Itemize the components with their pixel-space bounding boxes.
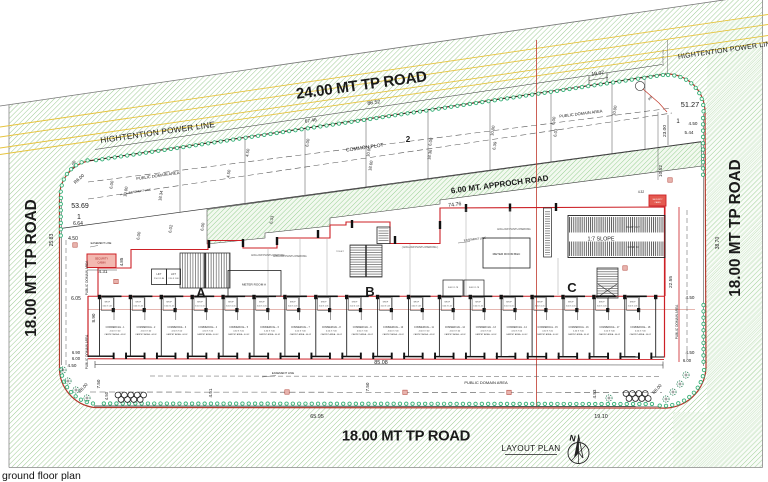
svg-text:8.90: 8.90 xyxy=(91,313,96,322)
svg-text:CARPET AREA : 44.02: CARPET AREA : 44.02 xyxy=(630,333,652,336)
svg-text:METER ROOM A: METER ROOM A xyxy=(242,283,267,287)
svg-text:4.50 X 7.00: 4.50 X 7.00 xyxy=(388,331,399,333)
svg-text:3.00 X 1.05: 3.00 X 1.05 xyxy=(628,306,638,308)
svg-text:3.00 X 1.05: 3.00 X 1.05 xyxy=(133,306,143,308)
svg-text:COMMERCIAL - 13: COMMERCIAL - 13 xyxy=(476,326,497,329)
svg-text:CARPET AREA : 44.02: CARPET AREA : 44.02 xyxy=(475,333,497,336)
svg-text:HOLLOW PLINTH PARKING: HOLLOW PLINTH PARKING xyxy=(497,227,530,231)
svg-text:4.50 X 7.00: 4.50 X 7.00 xyxy=(419,331,430,333)
svg-text:4.85: 4.85 xyxy=(119,257,124,266)
svg-text:3.68 X 1.78: 3.68 X 1.78 xyxy=(469,287,480,289)
svg-text:3.68 X 1.78: 3.68 X 1.78 xyxy=(448,287,459,289)
svg-text:COMMERCIAL - 2: COMMERCIAL - 2 xyxy=(136,326,156,329)
svg-text:7.50: 7.50 xyxy=(96,379,101,388)
svg-text:18.36: 18.36 xyxy=(426,148,433,160)
svg-text:COMMERCIAL - 7: COMMERCIAL - 7 xyxy=(291,326,311,329)
svg-text:R6.00: R6.00 xyxy=(77,382,89,394)
svg-text:7.50: 7.50 xyxy=(365,382,370,391)
svg-text:4.53: 4.53 xyxy=(592,389,597,398)
svg-text:1: 1 xyxy=(676,119,680,125)
svg-text:3.00 X 1.05: 3.00 X 1.05 xyxy=(319,306,329,308)
svg-text:PUBLIC DOMAIN AREA: PUBLIC DOMAIN AREA xyxy=(464,380,508,385)
svg-text:SHOP: SHOP xyxy=(383,302,389,304)
svg-text:3.00 X 1.05: 3.00 X 1.05 xyxy=(473,306,483,308)
svg-text:18.34: 18.34 xyxy=(157,189,164,201)
svg-text:SHOP: SHOP xyxy=(352,302,358,304)
svg-text:10.00: 10.00 xyxy=(611,104,618,116)
svg-text:4.31: 4.31 xyxy=(99,269,108,274)
svg-text:CARPET AREA : 44.02: CARPET AREA : 44.02 xyxy=(166,333,188,336)
svg-text:4.50: 4.50 xyxy=(689,121,698,126)
svg-text:CARPET AREA : 44.02: CARPET AREA : 44.02 xyxy=(321,333,343,336)
svg-text:CARPET AREA : 44.02: CARPET AREA : 44.02 xyxy=(444,333,466,336)
svg-text:COMMERCIAL - 12: COMMERCIAL - 12 xyxy=(445,326,466,329)
svg-text:4.50 X 7.00: 4.50 X 7.00 xyxy=(511,331,522,333)
svg-text:SHOP: SHOP xyxy=(475,302,481,304)
svg-text:19.10: 19.10 xyxy=(594,414,608,420)
svg-text:LIFT: LIFT xyxy=(171,273,176,276)
svg-text:CARPET AREA : 44.02: CARPET AREA : 44.02 xyxy=(352,333,374,336)
svg-text:CARPET AREA : 44.02: CARPET AREA : 44.02 xyxy=(506,333,528,336)
svg-text:4.51: 4.51 xyxy=(208,388,213,397)
svg-text:SHOP: SHOP xyxy=(197,302,203,304)
svg-text:3.00 X 1.05: 3.00 X 1.05 xyxy=(535,306,545,308)
svg-text:COMMERCIAL - 1: COMMERCIAL - 1 xyxy=(106,326,126,329)
svg-text:SHOP: SHOP xyxy=(444,302,450,304)
svg-text:SUB STN LINE: SUB STN LINE xyxy=(662,49,665,66)
svg-text:LIFT: LIFT xyxy=(157,273,162,276)
svg-text:TOILET: TOILET xyxy=(336,251,344,253)
svg-text:CARPET AREA : 44.02: CARPET AREA : 44.02 xyxy=(259,333,281,336)
svg-text:CARPET AREA : 44.02: CARPET AREA : 44.02 xyxy=(568,333,590,336)
svg-text:ground floor plan: ground floor plan xyxy=(2,470,81,482)
svg-text:CARPET AREA : 44.02: CARPET AREA : 44.02 xyxy=(413,333,435,336)
svg-text:HOLLOW PLINTH PARKING: HOLLOW PLINTH PARKING xyxy=(273,254,306,258)
svg-text:4.50 X 7.00: 4.50 X 7.00 xyxy=(357,331,368,333)
svg-text:4.50 X 7.00: 4.50 X 7.00 xyxy=(542,331,553,333)
svg-text:COMMERCIAL - 18: COMMERCIAL - 18 xyxy=(630,326,651,329)
svg-text:SHOP: SHOP xyxy=(228,302,234,304)
svg-text:SHOP: SHOP xyxy=(321,302,327,304)
svg-text:4.32: 4.32 xyxy=(638,190,644,194)
svg-text:4.50 X 7.00: 4.50 X 7.00 xyxy=(635,331,646,333)
svg-text:CARPET AREA : 44.02: CARPET AREA : 44.02 xyxy=(537,333,559,336)
svg-text:COMMERCIAL - 9: COMMERCIAL - 9 xyxy=(353,326,373,329)
svg-text:PUBLIC DOMAIN AREA: PUBLIC DOMAIN AREA xyxy=(85,334,89,369)
svg-text:10.00: 10.00 xyxy=(122,185,129,197)
svg-text:3.00 X 1.05: 3.00 X 1.05 xyxy=(164,306,174,308)
svg-text:R6: R6 xyxy=(647,95,653,101)
svg-text:4.50 X 7.00: 4.50 X 7.00 xyxy=(480,331,491,333)
svg-text:85.08: 85.08 xyxy=(374,360,388,366)
svg-text:COMMERCIAL - 15: COMMERCIAL - 15 xyxy=(538,326,559,329)
svg-text:6.64: 6.64 xyxy=(73,221,83,227)
svg-text:CABIN: CABIN xyxy=(98,261,106,265)
svg-text:4.50: 4.50 xyxy=(244,148,250,158)
svg-text:CARPET AREA : 44.02: CARPET AREA : 44.02 xyxy=(228,333,250,336)
svg-text:CARPET AREA : 44.02: CARPET AREA : 44.02 xyxy=(197,333,219,336)
svg-text:6.02: 6.02 xyxy=(167,224,173,234)
svg-text:CARPET AREA : 44.02: CARPET AREA : 44.02 xyxy=(382,333,404,336)
svg-text:( HOLLOW PLINTH PARKING ): ( HOLLOW PLINTH PARKING ) xyxy=(402,245,439,249)
svg-text:3.00 X 1.05: 3.00 X 1.05 xyxy=(288,306,298,308)
svg-text:6.00: 6.00 xyxy=(72,356,81,361)
svg-text:PUBLIC DOMAIN AREA: PUBLIC DOMAIN AREA xyxy=(675,304,679,339)
svg-text:3.00 X 1.05: 3.00 X 1.05 xyxy=(350,306,360,308)
svg-text:6.90: 6.90 xyxy=(72,350,81,355)
svg-text:R6.00: R6.00 xyxy=(73,173,86,185)
svg-text:4.50: 4.50 xyxy=(225,169,231,179)
svg-text:18.00 MT TP ROAD: 18.00 MT TP ROAD xyxy=(727,159,744,296)
svg-text:3.00 X 1.05: 3.00 X 1.05 xyxy=(195,306,205,308)
svg-text:CARPET AREA : 44.02: CARPET AREA : 44.02 xyxy=(135,333,157,336)
svg-text:EASEMENT LINE: EASEMENT LINE xyxy=(272,371,294,375)
svg-text:6.00: 6.00 xyxy=(135,231,141,241)
svg-text:6.00: 6.00 xyxy=(199,222,205,232)
svg-text:SHOP: SHOP xyxy=(135,302,141,304)
svg-text:10.00: 10.00 xyxy=(489,124,496,136)
svg-text:4.50 X 7.00: 4.50 X 7.00 xyxy=(233,331,244,333)
svg-text:CARPET AREA : 44.02: CARPET AREA : 44.02 xyxy=(290,333,312,336)
svg-text:22.55: 22.55 xyxy=(668,276,674,288)
svg-text:6.00: 6.00 xyxy=(304,138,310,148)
svg-text:5.44: 5.44 xyxy=(685,130,694,135)
svg-text:3.00 X 1.05: 3.00 X 1.05 xyxy=(381,306,391,308)
svg-text:SECURITY: SECURITY xyxy=(652,199,663,201)
svg-text:6.39: 6.39 xyxy=(491,141,497,151)
svg-text:53.69: 53.69 xyxy=(71,203,89,210)
svg-text:4.50: 4.50 xyxy=(68,363,77,368)
svg-text:METER ROOM B&C: METER ROOM B&C xyxy=(493,252,522,256)
svg-text:COMMERCIAL - 10: COMMERCIAL - 10 xyxy=(383,326,404,329)
svg-text:4.50 X 7.00: 4.50 X 7.00 xyxy=(264,331,275,333)
svg-text:CARPET AREA : 44.02: CARPET AREA : 44.02 xyxy=(599,333,621,336)
svg-text:RAMP IN: RAMP IN xyxy=(628,245,639,249)
svg-text:2: 2 xyxy=(406,135,411,144)
svg-text:4.50 X 7.00: 4.50 X 7.00 xyxy=(604,331,615,333)
svg-text:10.00: 10.00 xyxy=(365,145,372,157)
svg-text:3.00 X 1.05: 3.00 X 1.05 xyxy=(411,306,421,308)
svg-text:COMMERCIAL - 4: COMMERCIAL - 4 xyxy=(198,326,218,329)
svg-text:COMMERCIAL - 8: COMMERCIAL - 8 xyxy=(322,326,342,329)
svg-text:SHOP: SHOP xyxy=(568,302,574,304)
svg-text:COMMERCIAL - 11: COMMERCIAL - 11 xyxy=(414,326,435,329)
svg-text:2.50 X 1.80: 2.50 X 1.80 xyxy=(154,278,165,280)
svg-text:4.50 X 7.00: 4.50 X 7.00 xyxy=(326,331,337,333)
svg-text:3.00 X 1.05: 3.00 X 1.05 xyxy=(226,306,236,308)
svg-text:4.50: 4.50 xyxy=(104,391,109,400)
svg-text:LAYOUT PLAN: LAYOUT PLAN xyxy=(502,444,561,453)
svg-text:SHOP: SHOP xyxy=(259,302,265,304)
svg-text:CABIN: CABIN xyxy=(654,201,661,204)
svg-text:R6.00: R6.00 xyxy=(651,383,663,395)
svg-text:4.50 X 7.00: 4.50 X 7.00 xyxy=(110,331,121,333)
svg-text:SHOP: SHOP xyxy=(290,302,296,304)
svg-text:SECURITY: SECURITY xyxy=(95,257,108,261)
svg-text:SHOP: SHOP xyxy=(104,302,110,304)
svg-text:CARPET AREA : 44.02: CARPET AREA : 44.02 xyxy=(104,333,126,336)
svg-text:6.00: 6.00 xyxy=(683,358,692,363)
svg-text:51.27: 51.27 xyxy=(681,100,700,109)
svg-text:SHOP: SHOP xyxy=(599,302,605,304)
svg-text:4.50 X 7.00: 4.50 X 7.00 xyxy=(171,331,182,333)
svg-text:COMMON PLOT: COMMON PLOT xyxy=(346,142,384,153)
svg-text:RAMP OUT: RAMP OUT xyxy=(626,225,640,229)
svg-text:COMMERCIAL - 14: COMMERCIAL - 14 xyxy=(507,326,528,329)
svg-text:SHOP: SHOP xyxy=(630,302,636,304)
svg-text:10.52: 10.52 xyxy=(658,165,664,177)
svg-text:SHOP: SHOP xyxy=(506,302,512,304)
svg-text:23.00: 23.00 xyxy=(662,125,668,137)
svg-text:6.00: 6.00 xyxy=(550,116,556,126)
svg-text:4.50 X 7.00: 4.50 X 7.00 xyxy=(450,331,461,333)
svg-text:6.05: 6.05 xyxy=(71,296,81,302)
svg-text:18.00 MT TP ROAD: 18.00 MT TP ROAD xyxy=(23,199,40,336)
svg-text:COMMERCIAL - 5: COMMERCIAL - 5 xyxy=(229,326,249,329)
svg-text:25.83: 25.83 xyxy=(49,234,55,247)
svg-text:PUBLIC DOMAIN AREA: PUBLIC DOMAIN AREA xyxy=(85,260,89,295)
svg-text:COMMERCIAL - 6: COMMERCIAL - 6 xyxy=(260,326,280,329)
svg-text:2.50 X 1.80: 2.50 X 1.80 xyxy=(168,278,179,280)
svg-text:3.00 X 1.05: 3.00 X 1.05 xyxy=(504,306,514,308)
svg-text:COMMERCIAL - 17: COMMERCIAL - 17 xyxy=(599,326,620,329)
svg-text:6.00: 6.00 xyxy=(108,180,114,190)
svg-text:EASEMENT LINE: EASEMENT LINE xyxy=(129,187,152,194)
svg-text:SHOP: SHOP xyxy=(166,302,172,304)
svg-text:PUBLIC DOMAIN AREA: PUBLIC DOMAIN AREA xyxy=(559,108,603,118)
svg-text:6.00: 6.00 xyxy=(427,137,433,147)
svg-text:18.60: 18.60 xyxy=(367,159,374,171)
svg-text:65.95: 65.95 xyxy=(310,414,324,420)
svg-text:1: 1 xyxy=(77,214,81,221)
svg-text:4.50 X 7.00: 4.50 X 7.00 xyxy=(573,331,584,333)
svg-text:3.00 X 1.05: 3.00 X 1.05 xyxy=(257,306,267,308)
svg-text:SHOP: SHOP xyxy=(413,302,419,304)
svg-text:4.50 X 7.00: 4.50 X 7.00 xyxy=(141,331,152,333)
svg-text:4.50: 4.50 xyxy=(68,236,78,242)
svg-text:EASEMENT LINE: EASEMENT LINE xyxy=(91,241,112,245)
svg-text:COMMERCIAL - 3: COMMERCIAL - 3 xyxy=(167,326,187,329)
svg-text:COMMERCIAL - 16: COMMERCIAL - 16 xyxy=(568,326,589,329)
svg-text:3.00 X 1.05: 3.00 X 1.05 xyxy=(566,306,576,308)
svg-text:4.50 X 7.00: 4.50 X 7.00 xyxy=(202,331,213,333)
svg-text:3.00 X 1.05: 3.00 X 1.05 xyxy=(442,306,452,308)
svg-text:C: C xyxy=(567,280,577,295)
svg-text:18.00 MT TP ROAD: 18.00 MT TP ROAD xyxy=(342,429,471,445)
svg-text:4.50 X 7.00: 4.50 X 7.00 xyxy=(295,331,306,333)
svg-text:3.00 X 1.05: 3.00 X 1.05 xyxy=(597,306,607,308)
svg-text:1:7 SLOPE: 1:7 SLOPE xyxy=(588,237,615,243)
svg-text:3.00 X 1.05: 3.00 X 1.05 xyxy=(102,306,112,308)
svg-text:PUBLIC DOMAIN AREA: PUBLIC DOMAIN AREA xyxy=(136,170,180,181)
svg-text:38.70: 38.70 xyxy=(715,237,721,250)
svg-text:6.03: 6.03 xyxy=(552,128,558,138)
svg-text:SHOP: SHOP xyxy=(537,302,543,304)
